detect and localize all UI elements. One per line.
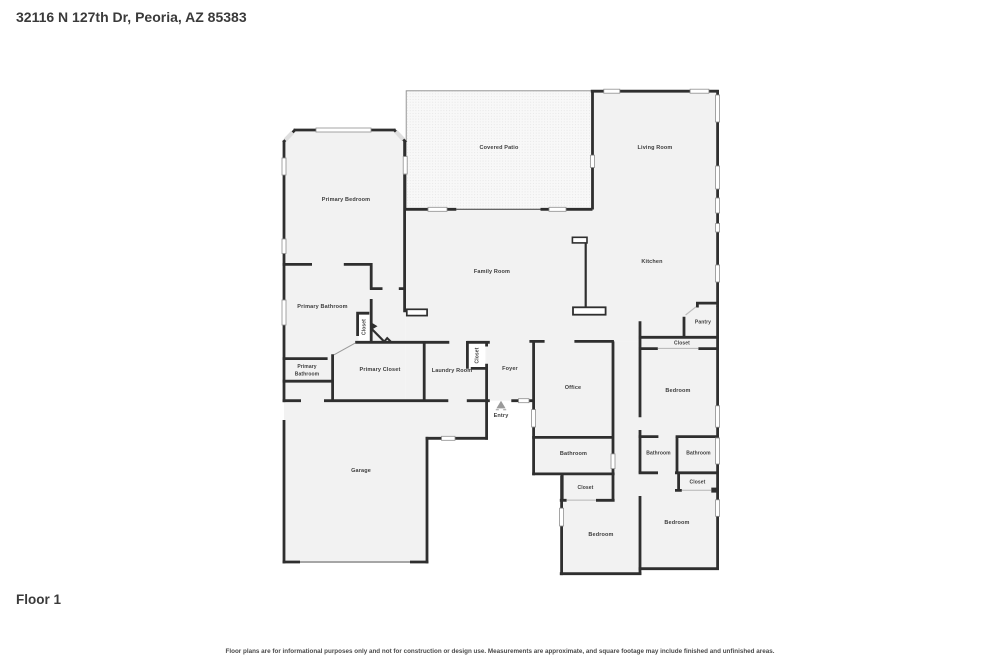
svg-text:Bathroom: Bathroom [686,451,711,457]
svg-text:Bedroom: Bedroom [665,388,690,394]
svg-text:Laundry Room: Laundry Room [432,368,473,374]
svg-text:Closet: Closet [690,480,706,486]
svg-text:Covered Patio: Covered Patio [480,145,519,151]
svg-text:Foyer: Foyer [502,366,518,372]
svg-text:Bedroom: Bedroom [588,532,613,538]
svg-text:Living Room: Living Room [638,145,673,151]
svg-text:Closet: Closet [475,347,481,363]
svg-text:Kitchen: Kitchen [641,259,663,265]
svg-text:Closet: Closet [578,485,594,491]
svg-text:Garage: Garage [351,468,371,474]
svg-text:Bathroom: Bathroom [560,451,587,457]
svg-text:Primary Bathroom: Primary Bathroom [297,304,347,310]
svg-text:Primary Bedroom: Primary Bedroom [322,197,370,203]
svg-text:Pantry: Pantry [695,320,711,326]
svg-text:Closet: Closet [362,319,368,335]
svg-text:Entry: Entry [494,413,510,419]
svg-text:Bathroom: Bathroom [646,451,671,457]
svg-text:Primary Closet: Primary Closet [360,367,401,373]
svg-text:Bathroom: Bathroom [295,372,320,378]
svg-text:Office: Office [565,385,582,391]
svg-text:Closet: Closet [674,341,690,347]
svg-text:Primary: Primary [297,364,316,370]
svg-text:Family Room: Family Room [474,269,510,275]
svg-text:Bedroom: Bedroom [664,520,689,526]
